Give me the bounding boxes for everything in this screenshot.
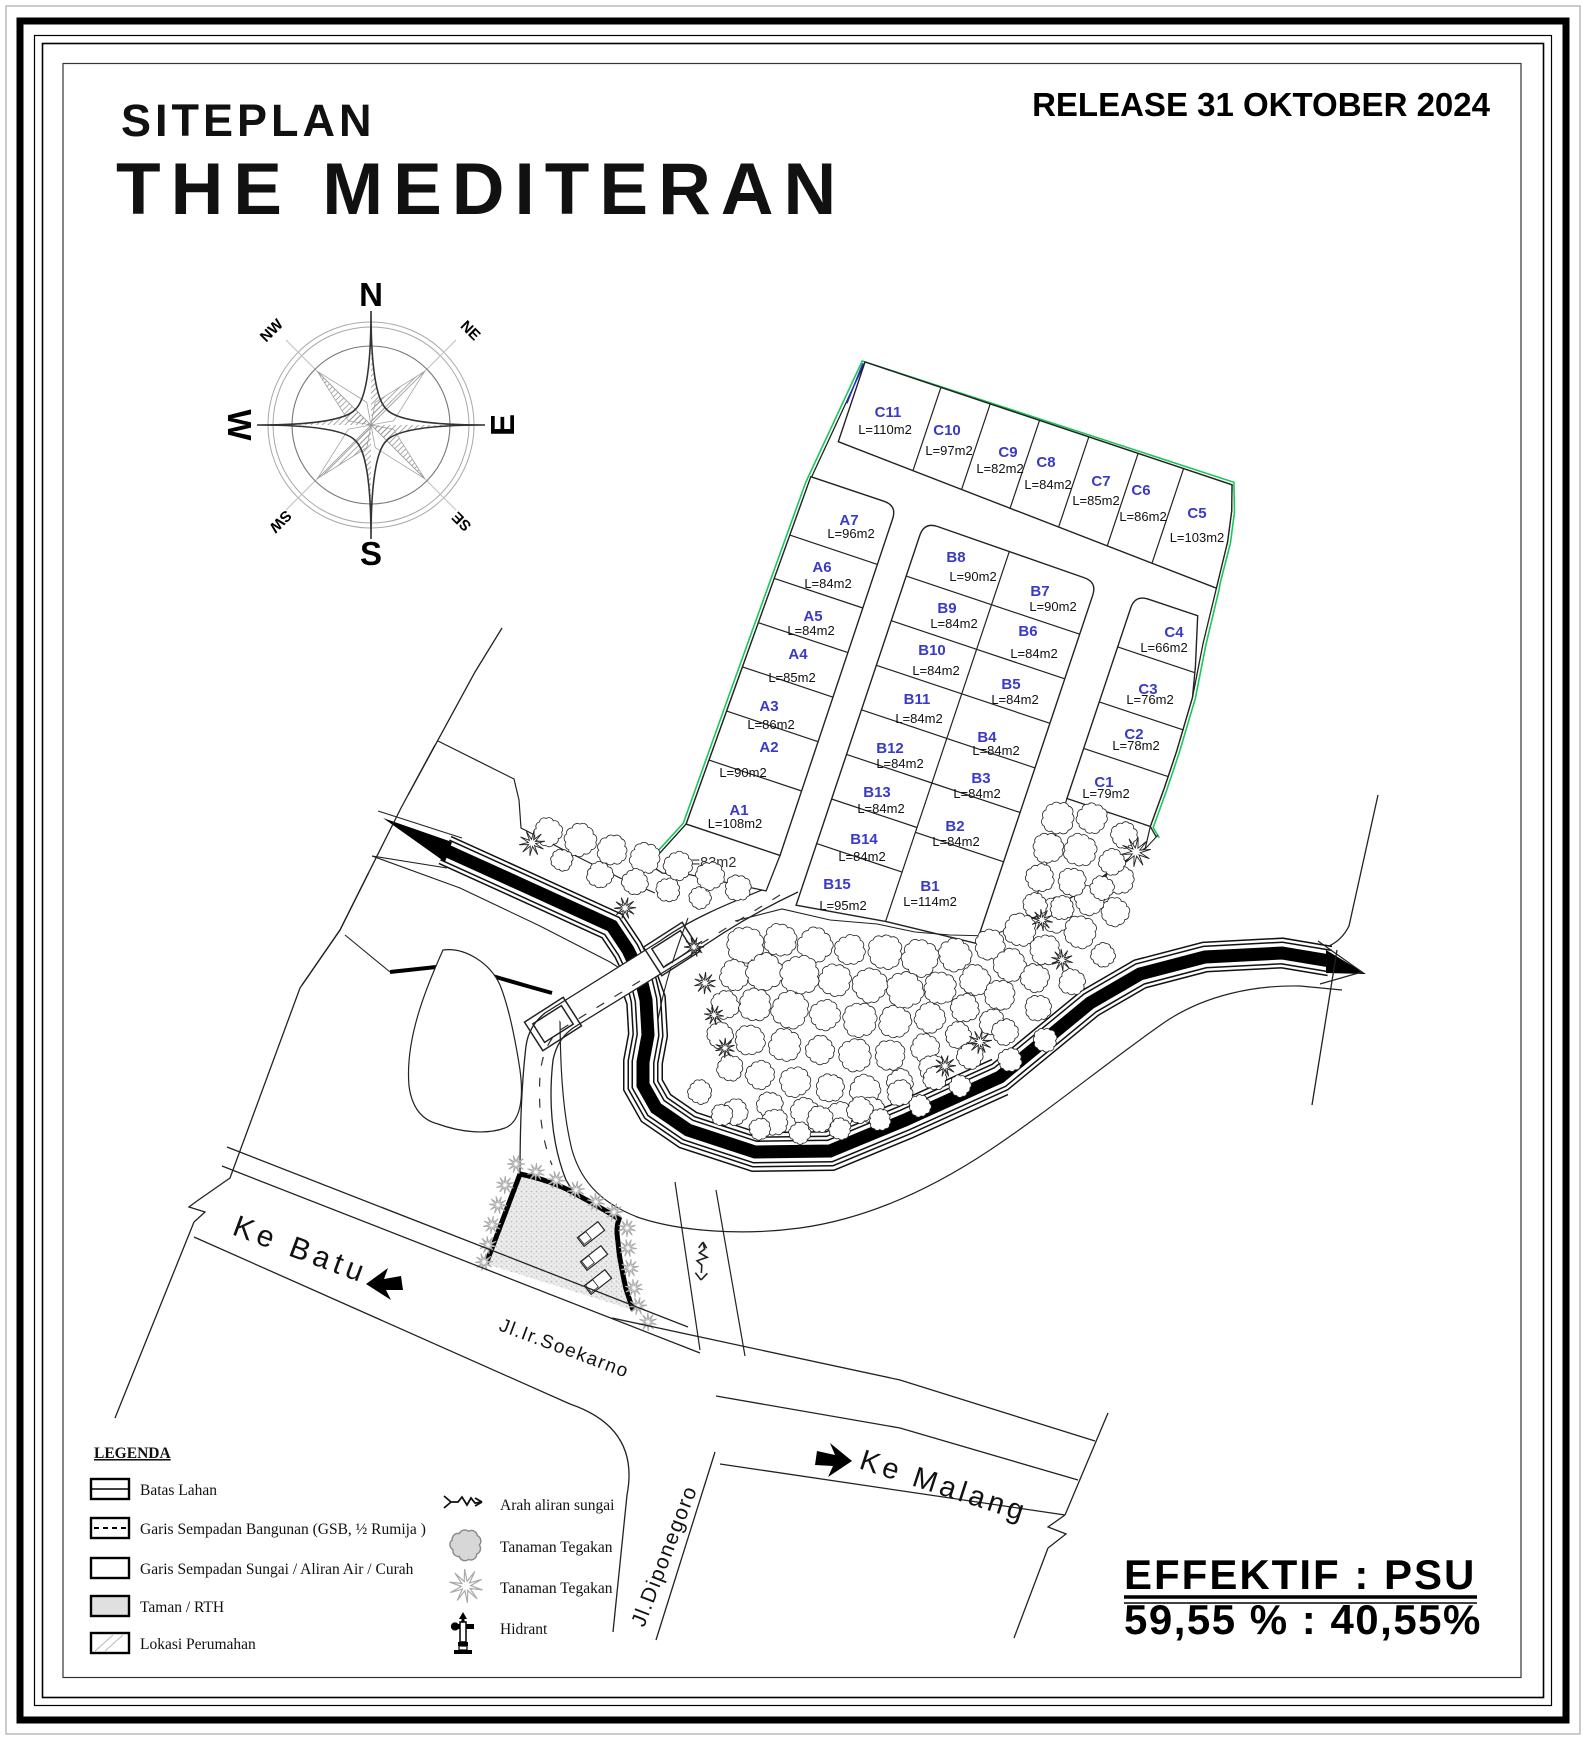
svg-text:B1: B1 — [920, 878, 939, 895]
svg-text:SITEPLAN: SITEPLAN — [121, 95, 376, 146]
svg-text:B9: B9 — [937, 600, 956, 617]
svg-text:L=96m2: L=96m2 — [827, 526, 874, 541]
svg-text:L=90m2: L=90m2 — [719, 765, 766, 780]
svg-text:L=84m2: L=84m2 — [787, 623, 834, 638]
svg-text:S: S — [360, 535, 382, 572]
svg-text:L=84m2: L=84m2 — [953, 786, 1000, 801]
svg-text:Arah aliran sungai: Arah aliran sungai — [500, 1497, 615, 1514]
svg-text:L=84m2: L=84m2 — [991, 692, 1038, 707]
svg-text:Garis Sempadan Sungai / Aliran: Garis Sempadan Sungai / Aliran Air / Cur… — [140, 1561, 414, 1578]
svg-text:B12: B12 — [876, 740, 904, 757]
svg-text:L=84m2: L=84m2 — [930, 616, 977, 631]
svg-text:LEGENDA: LEGENDA — [94, 1445, 171, 1462]
svg-text:Garis Sempadan Bangunan (GSB,: Garis Sempadan Bangunan (GSB, ½ Rumija ) — [140, 1521, 426, 1538]
svg-text:E: E — [484, 414, 521, 436]
svg-text:B6: B6 — [1018, 623, 1037, 640]
svg-text:B8: B8 — [946, 549, 965, 566]
svg-text:C7: C7 — [1091, 473, 1110, 490]
svg-text:C10: C10 — [933, 422, 961, 439]
svg-text:B5: B5 — [1001, 676, 1020, 693]
svg-text:L=66m2: L=66m2 — [1140, 640, 1187, 655]
svg-text:L=90m2: L=90m2 — [1029, 599, 1076, 614]
svg-text:C6: C6 — [1131, 482, 1150, 499]
svg-text:RELEASE 31 OKTOBER 2024: RELEASE 31 OKTOBER 2024 — [1032, 86, 1491, 123]
svg-text:L=79m2: L=79m2 — [1082, 786, 1129, 801]
svg-text:L=84m2: L=84m2 — [876, 756, 923, 771]
svg-text:C11: C11 — [875, 404, 902, 421]
svg-text:Hidrant: Hidrant — [500, 1621, 548, 1638]
svg-text:L=103m2: L=103m2 — [1170, 530, 1225, 545]
svg-text:L=86m2: L=86m2 — [747, 717, 794, 732]
svg-text:L=76m2: L=76m2 — [1126, 692, 1173, 707]
svg-text:L=84m2: L=84m2 — [912, 663, 959, 678]
svg-text:L=85m2: L=85m2 — [1072, 493, 1119, 508]
svg-text:L=82m2: L=82m2 — [976, 461, 1023, 476]
svg-text:W: W — [221, 409, 258, 441]
svg-text:L=84m2: L=84m2 — [1024, 477, 1071, 492]
svg-text:Taman / RTH: Taman / RTH — [140, 1599, 224, 1616]
svg-text:Tanaman Tegakan: Tanaman Tegakan — [500, 1539, 613, 1556]
svg-text:L=84m2: L=84m2 — [857, 801, 904, 816]
svg-text:EFFEKTIF : PSU: EFFEKTIF : PSU — [1124, 1551, 1476, 1598]
svg-text:L=86m2: L=86m2 — [1119, 509, 1166, 524]
svg-text:L=78m2: L=78m2 — [1112, 738, 1159, 753]
svg-text:Batas Lahan: Batas Lahan — [140, 1482, 217, 1499]
svg-text:B13: B13 — [863, 784, 891, 801]
svg-text:B2: B2 — [945, 818, 964, 835]
svg-text:C5: C5 — [1187, 505, 1206, 522]
svg-text:L=84m2: L=84m2 — [838, 849, 885, 864]
svg-text:L=97m2: L=97m2 — [925, 443, 972, 458]
svg-text:A2: A2 — [759, 739, 778, 756]
svg-text:THE MEDITERAN: THE MEDITERAN — [116, 149, 846, 230]
svg-text:L=84m2: L=84m2 — [804, 576, 851, 591]
svg-text:L=84m2: L=84m2 — [1010, 646, 1057, 661]
svg-text:Lokasi Perumahan: Lokasi Perumahan — [140, 1636, 256, 1653]
svg-text:L=84m2: L=84m2 — [932, 834, 979, 849]
svg-text:L=84m2: L=84m2 — [895, 711, 942, 726]
svg-text:C9: C9 — [998, 444, 1017, 461]
svg-text:N: N — [359, 276, 383, 313]
svg-text:Tanaman Tegakan: Tanaman Tegakan — [500, 1580, 613, 1597]
svg-text:B10: B10 — [918, 642, 946, 659]
svg-text:C4: C4 — [1164, 624, 1184, 641]
svg-text:B11: B11 — [904, 691, 931, 708]
svg-text:L=85m2: L=85m2 — [768, 670, 815, 685]
svg-text:A6: A6 — [812, 559, 831, 576]
svg-text:59,55 % : 40,55%: 59,55 % : 40,55% — [1124, 1596, 1482, 1643]
svg-text:B7: B7 — [1030, 583, 1049, 600]
svg-text:B3: B3 — [971, 770, 990, 787]
svg-text:C8: C8 — [1036, 454, 1055, 471]
svg-text:A4: A4 — [788, 646, 808, 663]
svg-text:L=110m2: L=110m2 — [858, 422, 912, 437]
svg-text:L=90m2: L=90m2 — [949, 569, 996, 584]
svg-text:L=95m2: L=95m2 — [819, 898, 866, 913]
svg-text:L=84m2: L=84m2 — [972, 743, 1019, 758]
svg-text:L=114m2: L=114m2 — [903, 894, 957, 909]
svg-text:A3: A3 — [759, 698, 778, 715]
svg-text:L=108m2: L=108m2 — [708, 816, 763, 831]
svg-text:B14: B14 — [850, 831, 878, 848]
svg-text:B15: B15 — [823, 876, 851, 893]
